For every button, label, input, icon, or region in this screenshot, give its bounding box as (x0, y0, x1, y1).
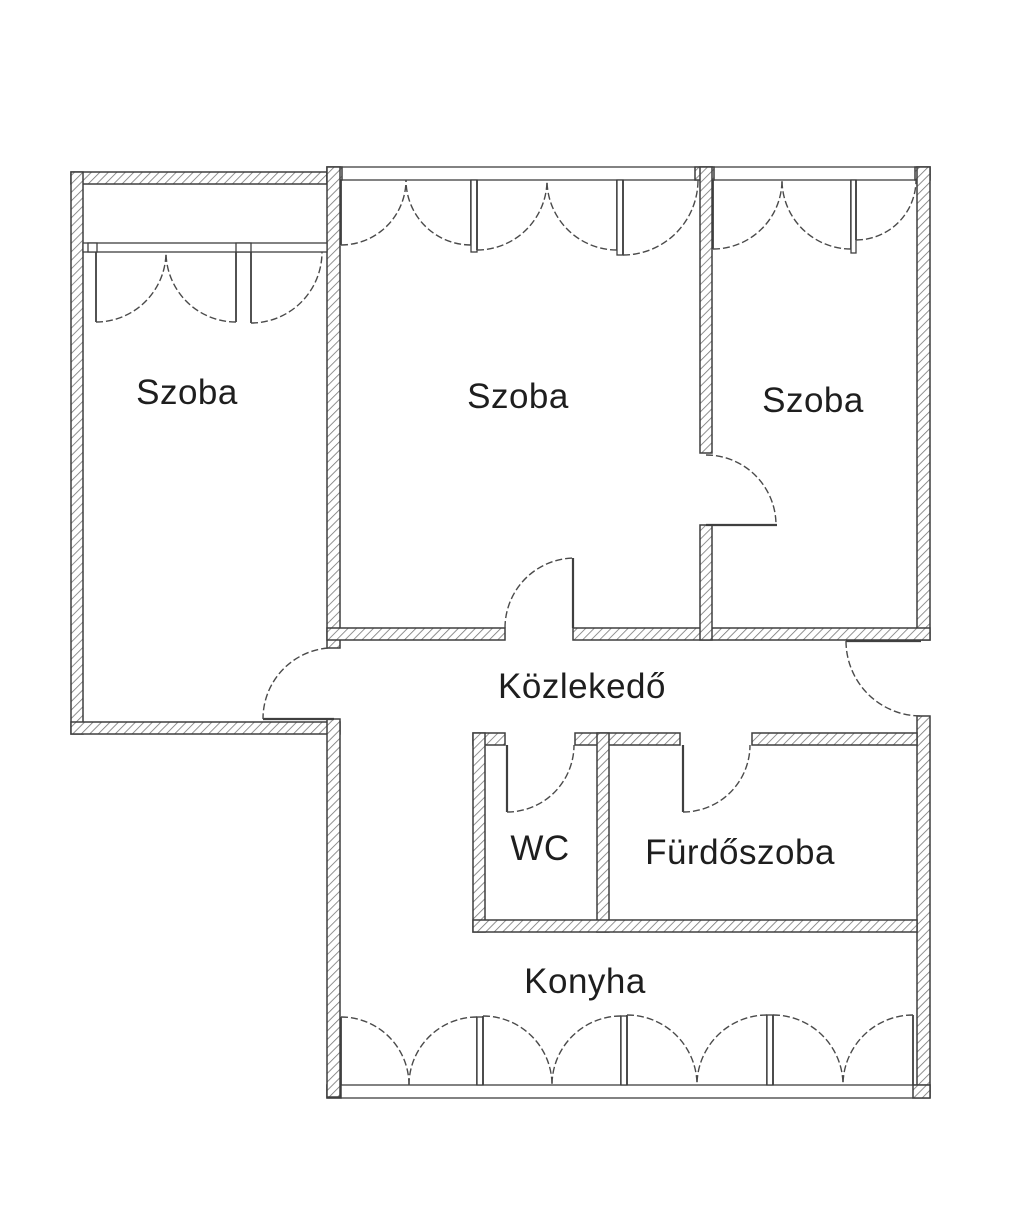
window-swing (483, 1016, 552, 1085)
wall-leftroom-divider-upper (327, 167, 340, 648)
room-label-furdoszoba: Fürdőszoba (645, 833, 835, 872)
window-swing (251, 252, 322, 323)
window-swing (547, 180, 617, 250)
room-label-szoba-middle: Szoba (467, 377, 569, 416)
door-swing (683, 745, 750, 812)
wall-corridor-top-left (327, 628, 505, 640)
window-band-top (327, 167, 930, 180)
window-swing (782, 180, 851, 249)
window-swing (341, 180, 406, 245)
window-swing (623, 180, 698, 255)
window-swing (166, 252, 236, 322)
door-swing (507, 745, 574, 812)
window-mullion (236, 243, 251, 252)
wall-left-room-bottom (71, 722, 340, 734)
wall-leftroom-divider-lower (327, 719, 340, 1097)
window-left-room (83, 243, 327, 323)
window-swing (409, 1017, 477, 1085)
window-swing (341, 1017, 409, 1085)
window-swing (773, 1015, 843, 1085)
room-label-konyha: Konyha (524, 962, 646, 1001)
door-bathroom (683, 745, 750, 812)
wall-corridor-top-right (573, 628, 930, 640)
window-swing (477, 180, 547, 250)
window-swing (697, 1015, 767, 1085)
wall-block-bottom (473, 920, 917, 932)
wall-middle-right-upper (700, 167, 712, 453)
room-labels: Szoba Szoba Szoba Közlekedő WC Fürdőszob… (136, 373, 864, 1001)
room-label-kozlekedo: Közlekedő (498, 667, 666, 706)
door-wc (507, 745, 574, 812)
wall-bottom-corner-right (913, 1085, 930, 1098)
floor-plan-canvas: Szoba Szoba Szoba Közlekedő WC Fürdőszob… (0, 0, 1024, 1225)
wall-wc-bath-divider (597, 733, 609, 932)
floor-plan: Szoba Szoba Szoba Közlekedő WC Fürdőszob… (0, 0, 1024, 1225)
window-swing (843, 1015, 913, 1085)
window-swing (856, 180, 916, 240)
window-band-bottom (327, 1085, 930, 1098)
window-post (88, 243, 97, 252)
door-swing (505, 558, 573, 628)
room-label-szoba-left: Szoba (136, 373, 238, 412)
wall-right-exterior-upper (917, 167, 930, 640)
door-right-room (706, 455, 777, 525)
window-swing (713, 180, 782, 249)
window-swing (627, 1015, 697, 1085)
wall-wc-left (473, 733, 485, 932)
wall-top-left (71, 172, 327, 184)
door-swing (706, 455, 776, 525)
room-label-wc: WC (510, 829, 569, 868)
window-kitchen (341, 1015, 913, 1085)
room-label-szoba-right: Szoba (762, 381, 864, 420)
door-swing (846, 641, 921, 716)
wall-middle-right-lower (700, 525, 712, 640)
window-sill (83, 243, 327, 252)
window-swing (552, 1016, 621, 1085)
wall-block-top-b (575, 733, 680, 745)
door-swing (263, 648, 328, 719)
window-middle-room (341, 180, 698, 255)
door-middle-room (505, 558, 573, 628)
wall-block-top-c (752, 733, 917, 745)
interior-walls (327, 167, 930, 1097)
window-swing (406, 180, 471, 245)
door-left-room (263, 648, 334, 719)
wall-right-exterior-lower (917, 716, 930, 1097)
window-swing (96, 252, 166, 322)
wall-left-exterior (71, 172, 83, 734)
window-right-room (713, 180, 916, 253)
door-entry (846, 641, 921, 716)
